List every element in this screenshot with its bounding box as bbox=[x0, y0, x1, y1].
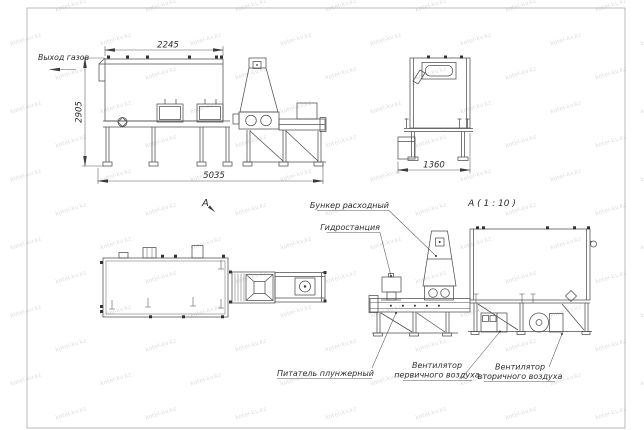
hopper-tower-side bbox=[233, 58, 279, 129]
hopper-plan bbox=[232, 272, 275, 303]
view-mark-arrow bbox=[209, 207, 215, 212]
view-detail-a bbox=[369, 226, 597, 336]
dim-2245: 2245 bbox=[157, 41, 179, 51]
boiler-body-side bbox=[99, 58, 223, 127]
label-secondary-fan-line1: Вентилятор bbox=[495, 363, 545, 372]
boiler-body-end bbox=[410, 58, 470, 128]
top-hatch bbox=[422, 63, 456, 80]
label-secondary-fan-line2: вторичного воздуха bbox=[478, 372, 563, 381]
detail-title: А ( 1 : 10 ) bbox=[467, 199, 516, 209]
plunger-feeder-detail bbox=[369, 296, 470, 337]
dimensions-side-view bbox=[50, 46, 323, 184]
side-box-end bbox=[398, 137, 415, 159]
view-end-elevation bbox=[398, 56, 473, 161]
leader-lines bbox=[277, 211, 563, 382]
label-primary-fan-line2: первичного воздуха bbox=[394, 371, 480, 380]
label-hopper: Бункер расходный bbox=[310, 201, 389, 210]
view-plan bbox=[100, 246, 327, 319]
bolt-markers bbox=[107, 56, 223, 59]
feeder-conveyor-side bbox=[243, 103, 326, 166]
boiler-body-plan bbox=[103, 258, 228, 317]
dim-1360: 1360 bbox=[423, 161, 445, 171]
view-mark-A: А bbox=[201, 198, 209, 209]
primary-air-fan bbox=[481, 313, 507, 332]
gas-outlet-stub bbox=[99, 58, 105, 81]
gas-outlet-label: Выход газов bbox=[38, 53, 90, 62]
technical-drawing: Выход газов 2245 2905 5035 1360 bbox=[0, 0, 644, 430]
label-feeder: Питатель плунжерный bbox=[277, 369, 374, 378]
dim-2905: 2905 bbox=[75, 101, 85, 123]
outlet-stub-end bbox=[413, 70, 425, 84]
label-hydrostation: Гидростанция bbox=[320, 223, 380, 232]
hydrostation-detail bbox=[381, 274, 401, 301]
drawing-sheet: kotel-kv.kzkotel-kv.kzkotel-kv.kzkotel-k… bbox=[0, 0, 644, 430]
dim-5035: 5035 bbox=[203, 171, 225, 181]
support-frame-side bbox=[103, 121, 232, 166]
hopper-tower-detail bbox=[423, 231, 456, 300]
secondary-air-fan bbox=[530, 313, 564, 332]
view-side-elevation bbox=[99, 56, 326, 167]
boiler-body-detail bbox=[470, 229, 597, 302]
valve-symbol bbox=[118, 118, 127, 127]
feeder-plan bbox=[275, 273, 325, 303]
label-primary-fan-line1: Вентилятор bbox=[412, 361, 462, 370]
